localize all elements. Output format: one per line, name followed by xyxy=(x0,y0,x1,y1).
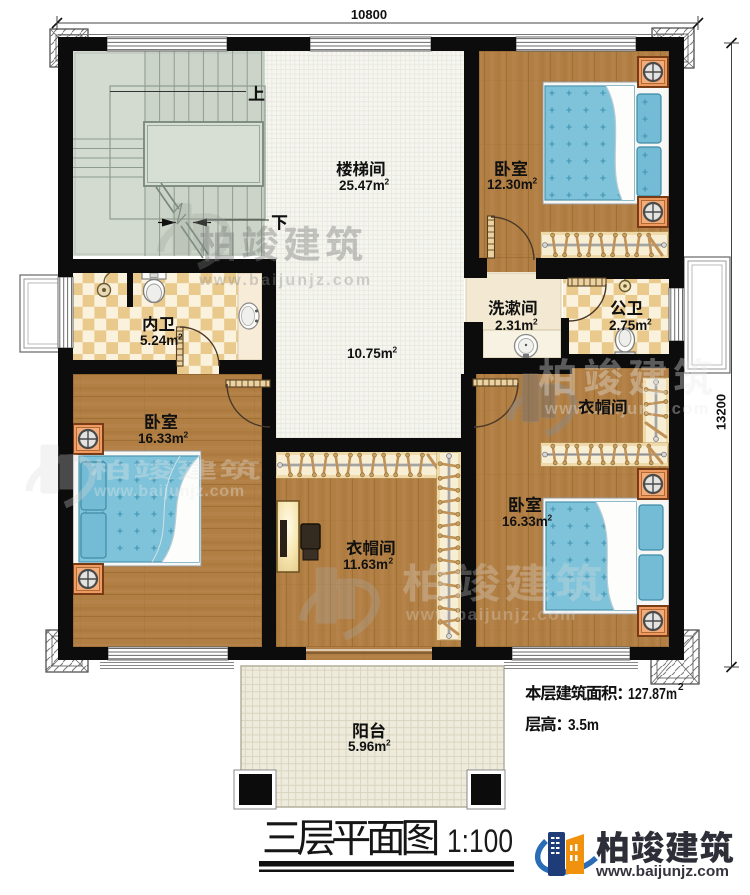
svg-text:2: 2 xyxy=(184,429,189,439)
svg-text:13200: 13200 xyxy=(714,394,729,430)
svg-text:2.31m: 2.31m xyxy=(495,318,533,333)
svg-text:www.baijunjz.com: www.baijunjz.com xyxy=(544,400,710,418)
svg-text:2: 2 xyxy=(548,512,553,522)
svg-text:25.47m: 25.47m xyxy=(339,178,385,193)
svg-text:2: 2 xyxy=(389,555,394,565)
svg-text:www.baijunjz.com: www.baijunjz.com xyxy=(595,863,729,880)
svg-text:2: 2 xyxy=(533,316,538,326)
svg-text:www.baijunjz.com: www.baijunjz.com xyxy=(198,272,372,289)
svg-text:2.75m: 2.75m xyxy=(609,318,647,333)
svg-text:5.24m: 5.24m xyxy=(140,333,178,348)
svg-text:www.baijunjz.com: www.baijunjz.com xyxy=(405,605,577,624)
svg-text:10800: 10800 xyxy=(351,7,387,22)
svg-text:2: 2 xyxy=(533,175,538,185)
svg-text:1:100: 1:100 xyxy=(447,823,513,859)
svg-text:2: 2 xyxy=(393,344,398,354)
svg-text:2: 2 xyxy=(386,737,391,747)
svg-text:2: 2 xyxy=(647,316,652,326)
svg-text:11.63m: 11.63m xyxy=(343,557,388,572)
svg-text:2: 2 xyxy=(385,176,390,186)
svg-text:3.5m: 3.5m xyxy=(568,717,599,734)
svg-text:16.33m: 16.33m xyxy=(138,431,184,446)
svg-text:2: 2 xyxy=(678,682,684,693)
svg-text:2: 2 xyxy=(178,331,183,341)
svg-text:12.30m: 12.30m xyxy=(487,177,533,192)
svg-text:127.87m: 127.87m xyxy=(628,686,677,703)
svg-text:www.baijunjz.com: www.baijunjz.com xyxy=(93,483,245,500)
svg-text:10.75m: 10.75m xyxy=(347,346,393,361)
svg-text:5.96m: 5.96m xyxy=(348,739,386,754)
svg-text:16.33m: 16.33m xyxy=(502,514,548,529)
